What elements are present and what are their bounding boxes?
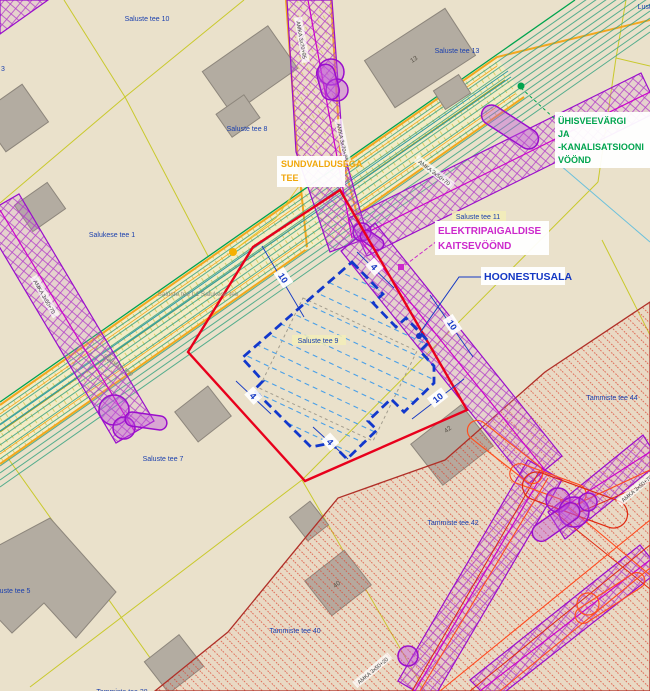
callout-text: SUNDVALDUSEGA <box>281 159 363 169</box>
parcel-label: Tammiste tee 42 <box>427 520 478 527</box>
callout-elektripaigaldise-kaitsevoond: ELEKTRIPAIGALDISE KAITSEVÖÖND <box>435 221 549 255</box>
parcel-label: 3 <box>1 66 5 73</box>
parcel-label: Tammiste tee 40 <box>269 628 320 635</box>
parcel-label: Saluste tee 11 <box>456 214 500 221</box>
callout-text: KAITSEVÖÖND <box>438 239 511 252</box>
parcel-label: Salukese tee 1 <box>89 232 135 239</box>
parcel-label: Saluste tee 9 <box>298 338 339 345</box>
callout-text: -KANALISATSIOONI <box>558 142 644 152</box>
parcel-label: Saluste tee 7 <box>143 456 184 463</box>
callout-veevark-voond: ÜHISVEEVÄRGI JA -KANALISATSIOONI VÖÖND <box>555 112 650 168</box>
parcel-label: Saluste tee 10 <box>125 16 170 23</box>
parcel-label: Saluste tee 13 <box>435 48 480 55</box>
parcel-label: Saluste tee 8 <box>227 126 268 133</box>
cable-point-marker <box>398 264 404 270</box>
road-parcel-label: Saluste tee L1 Salukese tee <box>158 291 239 298</box>
hoonestusala-point-marker <box>416 333 422 339</box>
callout-text: JA <box>558 129 570 139</box>
parcel-label: Tammiste tee 44 <box>586 395 637 402</box>
callout-hoonestusala: HOONESTUSALA <box>481 267 573 285</box>
callout-text: VÖÖND <box>558 155 592 165</box>
detail-plan-map[interactable]: Saluste tee 10 Saluste tee 8 Saluste tee… <box>0 0 650 691</box>
callout-text: ELEKTRIPAIGALDISE <box>438 226 541 237</box>
callout-text: HOONESTUSALA <box>484 271 573 283</box>
callout-text: ÜHISVEEVÄRGI <box>558 116 626 126</box>
road-point-marker <box>229 248 237 256</box>
plan-map-canvas[interactable]: Saluste tee 10 Saluste tee 8 Saluste tee… <box>0 0 650 691</box>
water-point-marker <box>518 83 525 90</box>
parcel-label: Saluste tee 5 <box>0 588 31 595</box>
callout-text: TEE <box>281 173 299 183</box>
parcel-label: Lusti <box>638 4 650 11</box>
